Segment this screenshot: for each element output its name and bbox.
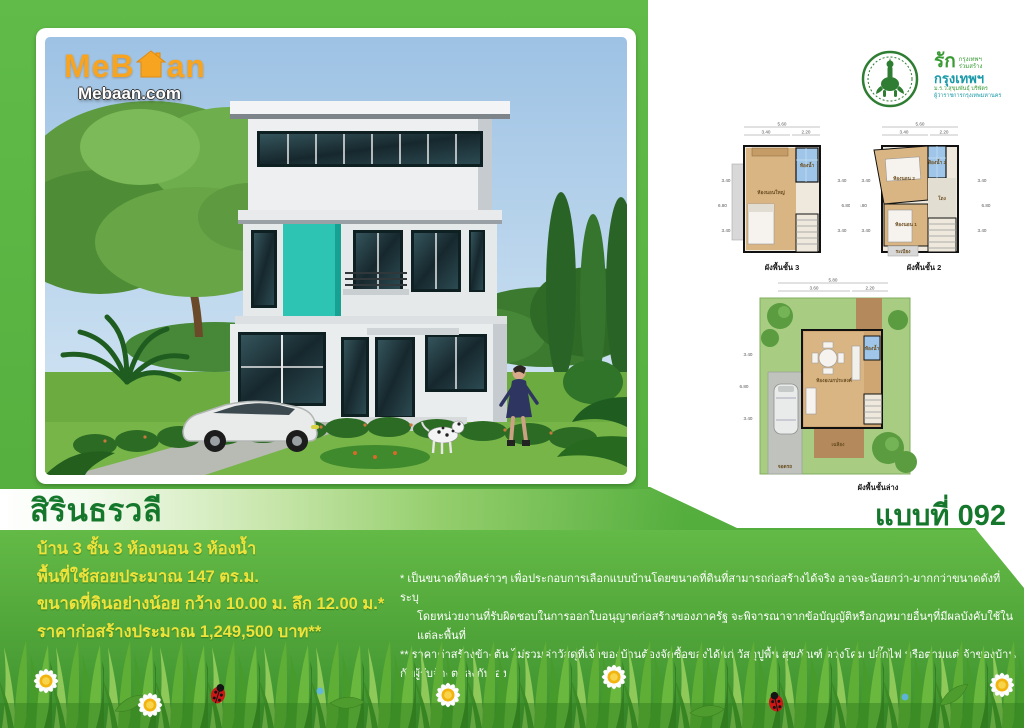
- dim-label: 6.80: [842, 203, 850, 208]
- dim-label: 3.40: [722, 228, 731, 233]
- room-label: โถง: [937, 195, 946, 202]
- room-label: เฉลียง: [832, 441, 846, 448]
- brand-name-part1: MeB: [64, 51, 135, 81]
- campaign-main: กรุงเทพฯ: [934, 72, 1024, 85]
- water-drop: [902, 694, 909, 701]
- dim-label: 3.40: [900, 130, 909, 135]
- title-band: สิรินธรวลี: [0, 489, 712, 530]
- campaign-sub2: ผู้ว่าราชการกรุงเทพมหานคร: [934, 94, 1024, 100]
- house-photo-frame: MeB an Mebaan.com: [36, 28, 636, 484]
- bangkok-seal: [860, 48, 920, 115]
- grass-decoration: [0, 633, 1024, 728]
- right-panel: รัก กรุงเทพฯ ร่วมสร้าง กรุงเทพฯ ม.ร.ว.สุ…: [648, 0, 1024, 600]
- dim-label: 6.80: [718, 203, 727, 208]
- dim-label: 3.40: [722, 178, 731, 183]
- dim-label: 3.40: [838, 228, 847, 233]
- dim-label: 3.40: [862, 228, 871, 233]
- plan-car: [774, 384, 798, 434]
- room-label: ห้องนอน 1: [895, 221, 917, 228]
- disclaimer-line: * เป็นขนาดที่ดินคร่าวๆ เพื่อประกอบการเลื…: [400, 570, 1018, 608]
- dim-label: 6.80: [982, 203, 991, 208]
- dim-label: 3.40: [744, 416, 753, 421]
- brand-site: Mebaan.com: [78, 84, 206, 104]
- flower-bed: [320, 445, 430, 469]
- spec-line: พื้นที่ใช้สอยประมาณ 147 ตร.ม.: [37, 564, 384, 592]
- dim-label: 6.80: [860, 203, 867, 208]
- bangkok-seal-icon: [860, 48, 920, 110]
- house: [230, 101, 510, 431]
- dim-label: 5.80: [829, 278, 838, 283]
- dim-label: 2.20: [866, 286, 875, 291]
- room-label: ห้องนอน 2: [893, 175, 915, 182]
- floor-plan-ground: 5.80 3.60 2.20 3.40 6.80 3.40: [738, 276, 928, 503]
- room-label: ห้องอเนกประสงค์: [816, 377, 852, 384]
- campaign-sub1: ม.ร.ว.สุขุมพันธุ์ บริพัตร: [934, 87, 1024, 93]
- campaign-love: รัก: [934, 52, 956, 71]
- brand-logo: MeB an Mebaan.com: [64, 50, 206, 104]
- floor-plan-3: 5.60 3.40 2.20 3.40 6.80 3.40 3.40 6.80 …: [718, 120, 850, 281]
- plan-caption: ผังพื้นชั้นล่าง: [858, 481, 899, 492]
- room-label: จอดรถ: [778, 464, 792, 470]
- dim-label: 3.40: [862, 178, 871, 183]
- spec-line: ขนาดที่ดินอย่างน้อย กว้าง 10.00 ม. ลึก 1…: [37, 591, 384, 619]
- spec-line: บ้าน 3 ชั้น 3 ห้องนอน 3 ห้องน้ำ: [37, 536, 384, 564]
- room-label: ห้องนอนใหญ่: [757, 189, 784, 196]
- campaign-small-1: กรุงเทพฯ: [959, 57, 983, 64]
- dim-label: 5.60: [916, 122, 925, 127]
- dim-label: 2.20: [940, 130, 949, 135]
- dim-label: 3.40: [838, 178, 847, 183]
- room-label: ระเบียง: [896, 248, 912, 255]
- house-model-title: สิรินธรวลี: [30, 485, 162, 535]
- dim-label: 3.40: [744, 352, 753, 357]
- water-drop: [317, 688, 324, 695]
- plan-caption: ผังพื้นชั้น 3: [765, 261, 800, 272]
- house-icon: [136, 50, 166, 82]
- dim-label: 2.20: [802, 130, 811, 135]
- brand-name-part2: an: [167, 51, 206, 81]
- dim-label: 3.40: [978, 178, 987, 183]
- dim-label: 3.40: [978, 228, 987, 233]
- dim-label: 3.60: [810, 286, 819, 291]
- campaign-logo: รัก กรุงเทพฯ ร่วมสร้าง กรุงเทพฯ ม.ร.ว.สุ…: [934, 52, 1024, 99]
- brochure-page: MeB an Mebaan.com สิรินธรวลี บ้าน 3 ชั้น…: [0, 0, 1024, 728]
- spec-list: บ้าน 3 ชั้น 3 ห้องนอน 3 ห้องน้ำ พื้นที่ใ…: [37, 536, 384, 646]
- dim-label: 3.40: [762, 130, 771, 135]
- dim-label: 5.60: [778, 122, 787, 127]
- campaign-small-2: ร่วมสร้าง: [959, 64, 983, 71]
- dim-label: 6.80: [740, 384, 749, 389]
- plan-caption: ผังพื้นชั้น 2: [907, 261, 942, 272]
- floor-plan-2: 5.60 3.40 2.20 3.40 6.80 3.40 3.40 6.80 …: [860, 120, 992, 281]
